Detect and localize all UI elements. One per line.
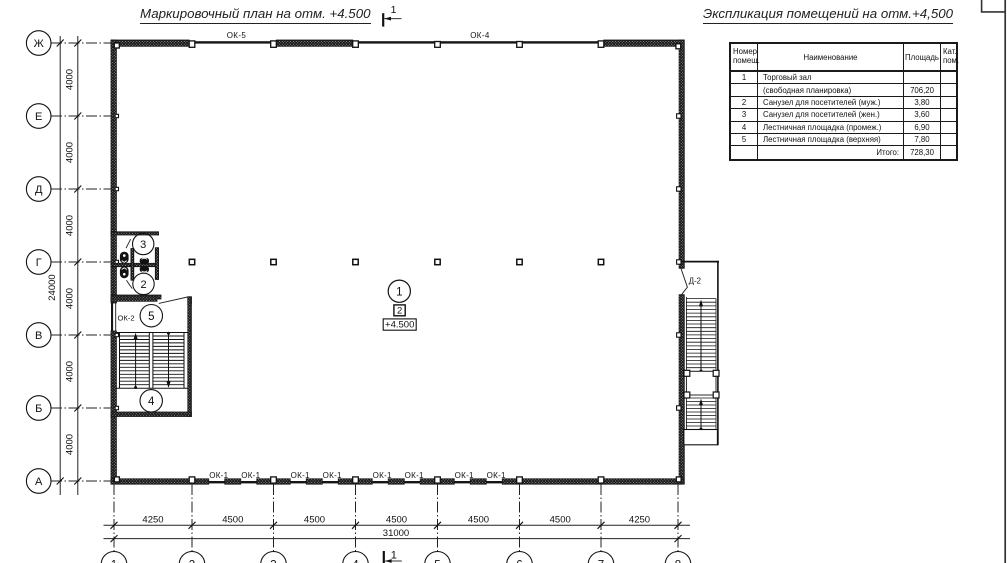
svg-text:1: 1	[111, 560, 117, 563]
svg-text:6: 6	[516, 560, 522, 563]
svg-text:4: 4	[148, 396, 155, 408]
svg-text:Ж: Ж	[34, 38, 44, 50]
svg-text:ОК-1: ОК-1	[323, 471, 342, 480]
svg-text:4000: 4000	[65, 288, 76, 309]
svg-text:3: 3	[140, 239, 146, 251]
svg-text:24000: 24000	[47, 274, 58, 300]
svg-text:Г: Г	[36, 257, 42, 269]
svg-text:4000: 4000	[65, 434, 76, 455]
svg-text:7: 7	[598, 560, 604, 563]
svg-text:2: 2	[189, 560, 195, 563]
svg-text:Д: Д	[35, 184, 43, 196]
svg-text:1: 1	[391, 550, 397, 562]
svg-text:8: 8	[675, 560, 681, 563]
svg-text:5: 5	[148, 311, 154, 323]
svg-text:4000: 4000	[65, 215, 76, 236]
svg-text:ОК-1: ОК-1	[405, 471, 424, 480]
svg-text:2: 2	[397, 305, 402, 316]
svg-text:ОК-2: ОК-2	[118, 314, 135, 323]
svg-text:4500: 4500	[468, 514, 489, 525]
svg-text:ОК-1: ОК-1	[455, 471, 474, 480]
svg-text:+4.500: +4.500	[385, 320, 414, 331]
svg-text:2: 2	[140, 279, 146, 291]
svg-text:4250: 4250	[629, 514, 650, 525]
svg-text:А: А	[35, 476, 43, 488]
svg-text:4500: 4500	[304, 514, 325, 525]
svg-text:1: 1	[396, 286, 402, 298]
svg-text:4000: 4000	[65, 361, 76, 382]
svg-text:ОК-1: ОК-1	[241, 471, 260, 480]
svg-text:ОК-1: ОК-1	[373, 471, 392, 480]
svg-text:Е: Е	[35, 111, 42, 123]
svg-text:3: 3	[270, 560, 276, 563]
svg-text:1: 1	[391, 4, 397, 16]
svg-text:4000: 4000	[65, 142, 76, 163]
svg-text:4500: 4500	[386, 514, 407, 525]
svg-text:4000: 4000	[65, 69, 76, 90]
svg-text:ОК-5: ОК-5	[227, 31, 247, 40]
svg-text:ОК-4: ОК-4	[470, 31, 490, 40]
svg-text:31000: 31000	[383, 528, 409, 539]
svg-text:4500: 4500	[222, 514, 243, 525]
svg-text:Б: Б	[35, 403, 42, 415]
svg-text:ОК-1: ОК-1	[487, 471, 506, 480]
svg-text:ОК-1: ОК-1	[209, 471, 228, 480]
svg-text:Д-2: Д-2	[689, 276, 701, 285]
svg-text:4250: 4250	[142, 514, 163, 525]
svg-text:4: 4	[352, 560, 359, 563]
svg-text:5: 5	[434, 560, 440, 563]
svg-text:4500: 4500	[550, 514, 571, 525]
svg-text:ОК-1: ОК-1	[291, 471, 310, 480]
svg-text:В: В	[35, 330, 42, 342]
